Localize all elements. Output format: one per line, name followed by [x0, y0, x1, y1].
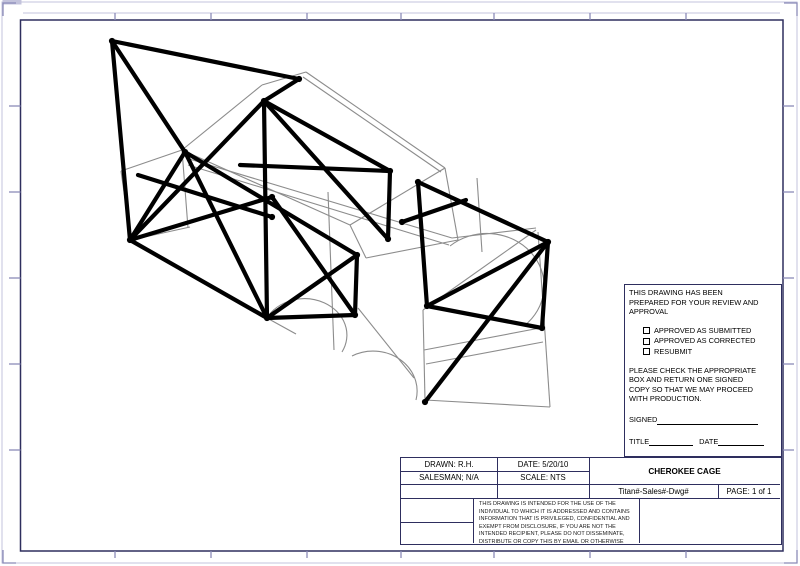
drawn-by-cell: DRAWN: R.H.	[401, 458, 497, 471]
cage-joint	[352, 312, 358, 318]
checkbox-icon	[643, 327, 650, 334]
approval-box: THIS DRAWING HAS BEEN PREPARED FOR YOUR …	[624, 284, 782, 457]
checkbox-label: APPROVED AS CORRECTED	[654, 336, 755, 346]
title-block: DRAWN: R.H. DATE: 5/20/10 SALESMAN; N/A …	[400, 457, 782, 545]
confidentiality-disclaimer: THIS DRAWING IS INTENDED FOR THE USE OF …	[474, 498, 639, 543]
cage-joint	[415, 179, 421, 185]
approval-intro: THIS DRAWING HAS BEEN PREPARED FOR YOUR …	[629, 288, 777, 317]
date-label: DATE	[699, 437, 718, 447]
signed-blank-line	[657, 417, 758, 425]
approval-option-submitted: APPROVED AS SUBMITTED	[643, 326, 777, 336]
checkbox-icon	[643, 348, 650, 355]
divider	[401, 522, 473, 523]
page-number-cell: PAGE: 1 of 1	[718, 484, 780, 498]
cage-joint	[354, 252, 360, 258]
approval-note: PLEASE CHECK THE APPROPRIATE BOX AND RET…	[629, 366, 777, 404]
salesman-cell: SALESMAN; N/A	[401, 471, 497, 484]
title-label: TITLE	[629, 437, 649, 447]
title-date-line: TITLEDATE	[629, 437, 777, 447]
scale-cell: SCALE: NTS	[497, 471, 589, 484]
cage-joint	[269, 194, 275, 200]
cage-joint	[296, 76, 302, 82]
cage-joint	[127, 237, 133, 243]
cad-sheet-page: { "sheet": { "frame_color": "#2e2e5e", "…	[0, 0, 800, 566]
date-blank-line	[718, 438, 764, 446]
signed-label: SIGNED	[629, 415, 657, 425]
title-blank-line	[649, 438, 693, 446]
cage-joint	[387, 168, 393, 174]
cage-joint	[545, 239, 551, 245]
cage-joint	[261, 98, 267, 104]
date-cell: DATE: 5/20/10	[497, 458, 589, 471]
cage-joint	[269, 214, 275, 220]
cage-joint	[539, 325, 545, 331]
signed-line: SIGNED	[629, 415, 777, 425]
checkbox-label: APPROVED AS SUBMITTED	[654, 326, 751, 336]
cage-joint	[422, 399, 428, 405]
cage-joint	[385, 236, 391, 242]
doc-code-cell: Titan#-Sales#-Dwg#	[589, 484, 718, 498]
divider	[639, 498, 640, 543]
cage-joint	[182, 149, 188, 155]
approval-option-corrected: APPROVED AS CORRECTED	[643, 336, 777, 346]
cage-joint	[109, 38, 115, 44]
approval-option-resubmit: RESUBMIT	[643, 347, 777, 357]
project-title-cell: CHEROKEE CAGE	[589, 458, 780, 484]
cage-joint	[424, 303, 430, 309]
approval-checkbox-group: APPROVED AS SUBMITTED APPROVED AS CORREC…	[643, 326, 777, 357]
cage-joint	[399, 219, 405, 225]
checkbox-label: RESUBMIT	[654, 347, 692, 357]
cage-joint	[264, 315, 270, 321]
checkbox-icon	[643, 338, 650, 345]
